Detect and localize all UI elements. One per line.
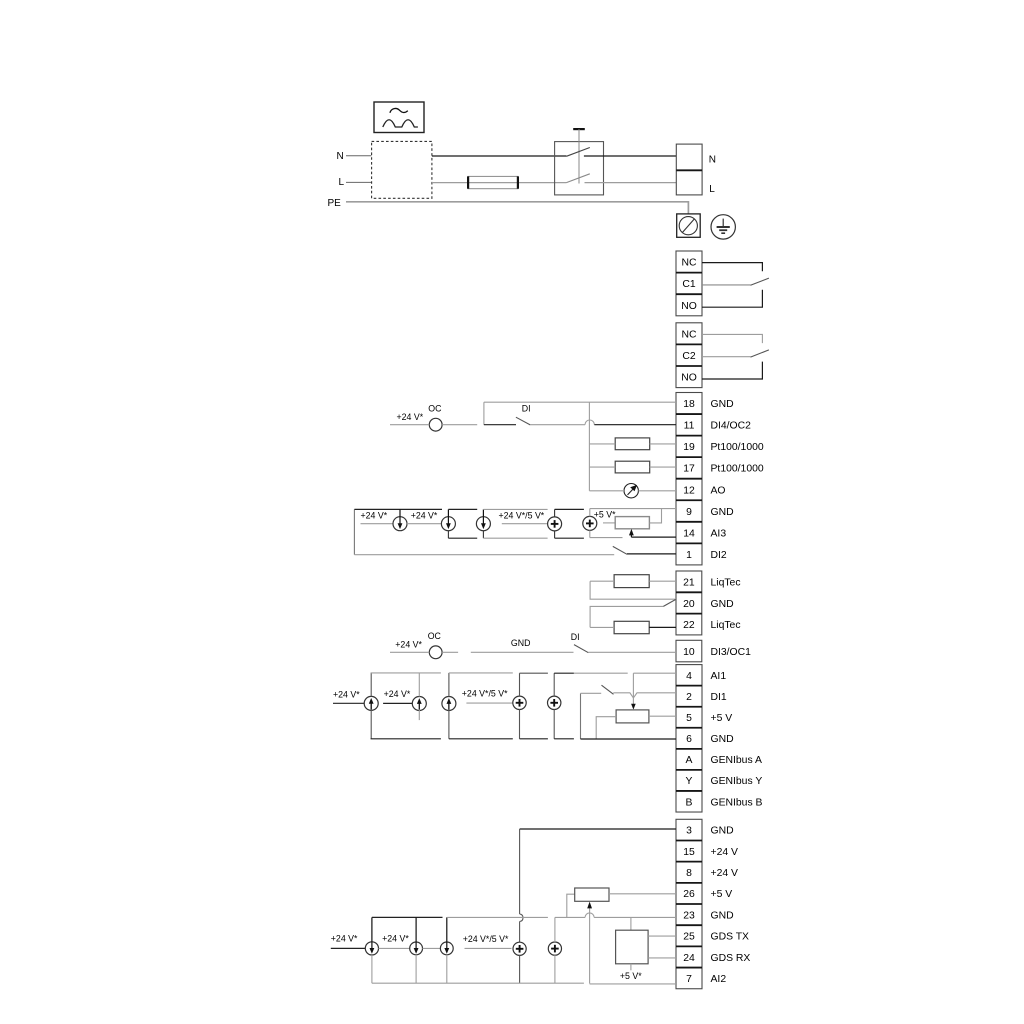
svg-text:19: 19 xyxy=(683,442,695,453)
svg-text:GND: GND xyxy=(711,399,734,410)
svg-text:+24 V*/5 V*: +24 V*/5 V* xyxy=(463,934,509,944)
svg-text:+5 V*: +5 V* xyxy=(620,971,642,981)
svg-text:GND: GND xyxy=(711,734,734,745)
svg-text:GENIbus B: GENIbus B xyxy=(711,797,763,808)
svg-text:+24 V*: +24 V* xyxy=(331,934,358,944)
svg-text:C1: C1 xyxy=(682,279,696,290)
svg-text:23: 23 xyxy=(683,910,695,921)
svg-text:C2: C2 xyxy=(682,351,696,362)
svg-text:N: N xyxy=(337,151,344,162)
svg-text:Pt100/1000: Pt100/1000 xyxy=(711,464,764,475)
svg-text:+5 V: +5 V xyxy=(711,889,733,900)
svg-text:+24 V*: +24 V* xyxy=(395,639,422,649)
svg-text:6: 6 xyxy=(686,734,692,745)
svg-text:NC: NC xyxy=(681,258,697,269)
svg-text:24: 24 xyxy=(683,953,695,964)
svg-text:+5 V: +5 V xyxy=(711,713,733,724)
svg-text:NO: NO xyxy=(681,373,697,384)
svg-text:26: 26 xyxy=(683,889,695,900)
svg-text:AO: AO xyxy=(711,485,726,496)
svg-text:PE: PE xyxy=(328,198,342,209)
svg-text:DI: DI xyxy=(522,403,531,413)
svg-text:GND: GND xyxy=(711,507,734,518)
svg-text:GDS RX: GDS RX xyxy=(711,953,751,964)
svg-text:1: 1 xyxy=(686,550,692,561)
svg-text:AI3: AI3 xyxy=(711,528,727,539)
svg-text:+24 V*: +24 V* xyxy=(397,412,424,422)
svg-text:NO: NO xyxy=(681,301,697,312)
svg-text:LiqTec: LiqTec xyxy=(711,577,741,588)
svg-text:25: 25 xyxy=(683,932,695,943)
svg-text:DI1: DI1 xyxy=(711,692,727,703)
svg-text:DI2: DI2 xyxy=(711,550,727,561)
svg-text:+24 V*: +24 V* xyxy=(382,934,409,944)
svg-text:3: 3 xyxy=(686,826,692,837)
svg-text:Pt100/1000: Pt100/1000 xyxy=(711,442,764,453)
svg-text:12: 12 xyxy=(683,485,695,496)
svg-text:Y: Y xyxy=(686,776,693,787)
svg-text:+24 V*: +24 V* xyxy=(361,510,388,520)
svg-text:2: 2 xyxy=(686,692,692,703)
svg-text:DI4/OC2: DI4/OC2 xyxy=(711,421,752,432)
svg-text:+24 V*: +24 V* xyxy=(384,689,411,699)
svg-text:+24 V: +24 V xyxy=(711,868,739,879)
svg-text:8: 8 xyxy=(686,868,692,879)
svg-text:N: N xyxy=(709,155,716,166)
svg-text:15: 15 xyxy=(683,847,695,858)
svg-text:GND: GND xyxy=(511,638,531,648)
svg-text:+24 V*: +24 V* xyxy=(411,510,438,520)
svg-text:OC: OC xyxy=(428,631,442,641)
svg-text:GENIbus Y: GENIbus Y xyxy=(711,776,763,787)
svg-text:18: 18 xyxy=(683,399,695,410)
svg-text:+5 V*: +5 V* xyxy=(594,510,616,520)
svg-text:DI: DI xyxy=(571,632,580,642)
svg-text:OC: OC xyxy=(428,403,442,413)
svg-text:A: A xyxy=(686,755,693,766)
svg-text:21: 21 xyxy=(683,577,695,588)
svg-text:NC: NC xyxy=(681,329,697,340)
svg-text:11: 11 xyxy=(684,421,695,432)
svg-text:GND: GND xyxy=(711,826,734,837)
svg-text:+24 V*/5 V*: +24 V*/5 V* xyxy=(462,689,508,699)
svg-text:AI2: AI2 xyxy=(711,974,727,985)
svg-text:22: 22 xyxy=(683,620,695,631)
svg-text:+24 V*/5 V*: +24 V*/5 V* xyxy=(499,510,545,520)
svg-text:10: 10 xyxy=(683,647,695,658)
svg-text:L: L xyxy=(709,184,715,195)
svg-text:DI3/OC1: DI3/OC1 xyxy=(711,647,752,658)
svg-text:14: 14 xyxy=(683,528,695,539)
svg-text:GND: GND xyxy=(711,599,734,610)
svg-text:B: B xyxy=(686,797,693,808)
svg-text:17: 17 xyxy=(683,464,695,475)
svg-text:7: 7 xyxy=(686,974,692,985)
svg-text:+24 V: +24 V xyxy=(711,847,739,858)
svg-text:GENIbus A: GENIbus A xyxy=(711,755,762,766)
svg-text:4: 4 xyxy=(686,671,692,682)
svg-text:LiqTec: LiqTec xyxy=(711,620,741,631)
svg-text:5: 5 xyxy=(686,713,692,724)
svg-text:9: 9 xyxy=(686,507,692,518)
svg-text:20: 20 xyxy=(683,599,695,610)
svg-text:GND: GND xyxy=(711,910,734,921)
svg-text:GDS TX: GDS TX xyxy=(711,932,750,943)
svg-text:+24 V*: +24 V* xyxy=(333,690,360,700)
svg-text:L: L xyxy=(339,177,345,188)
svg-text:AI1: AI1 xyxy=(711,671,727,682)
